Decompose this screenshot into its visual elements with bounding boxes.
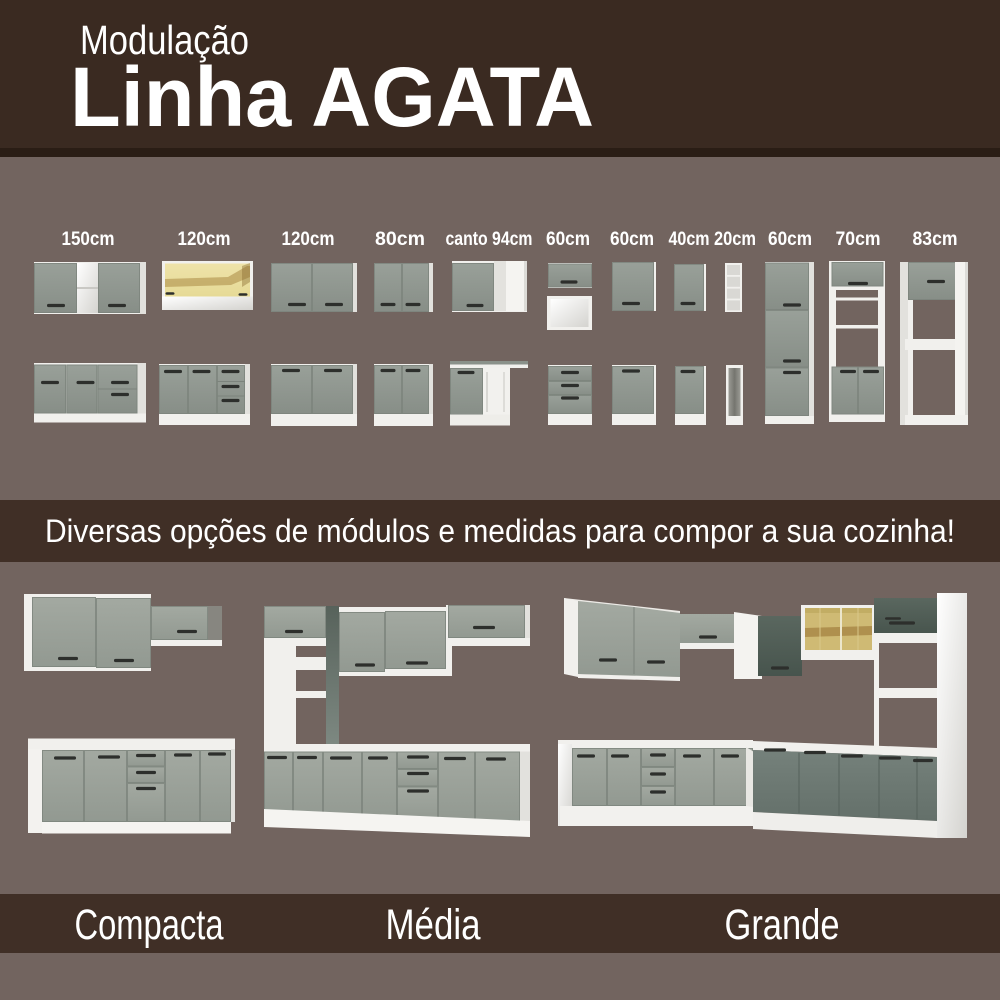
svg-text:Compacta: Compacta <box>75 901 224 949</box>
svg-text:60cm: 60cm <box>610 228 654 250</box>
svg-text:20cm: 20cm <box>714 228 756 250</box>
svg-text:canto 94cm: canto 94cm <box>446 228 533 250</box>
svg-text:Grande: Grande <box>725 901 840 949</box>
svg-text:Linha AGATA: Linha AGATA <box>70 50 594 144</box>
svg-text:70cm: 70cm <box>836 228 881 250</box>
svg-text:40cm: 40cm <box>669 228 710 250</box>
svg-text:80cm: 80cm <box>375 228 425 250</box>
svg-text:150cm: 150cm <box>62 228 115 250</box>
svg-text:Diversas opções de módulos e m: Diversas opções de módulos e medidas par… <box>45 513 955 549</box>
svg-text:83cm: 83cm <box>913 228 958 250</box>
svg-text:120cm: 120cm <box>178 228 231 250</box>
svg-text:60cm: 60cm <box>546 228 590 250</box>
svg-text:120cm: 120cm <box>282 228 335 250</box>
svg-text:60cm: 60cm <box>768 228 812 250</box>
svg-text:Média: Média <box>386 901 481 949</box>
